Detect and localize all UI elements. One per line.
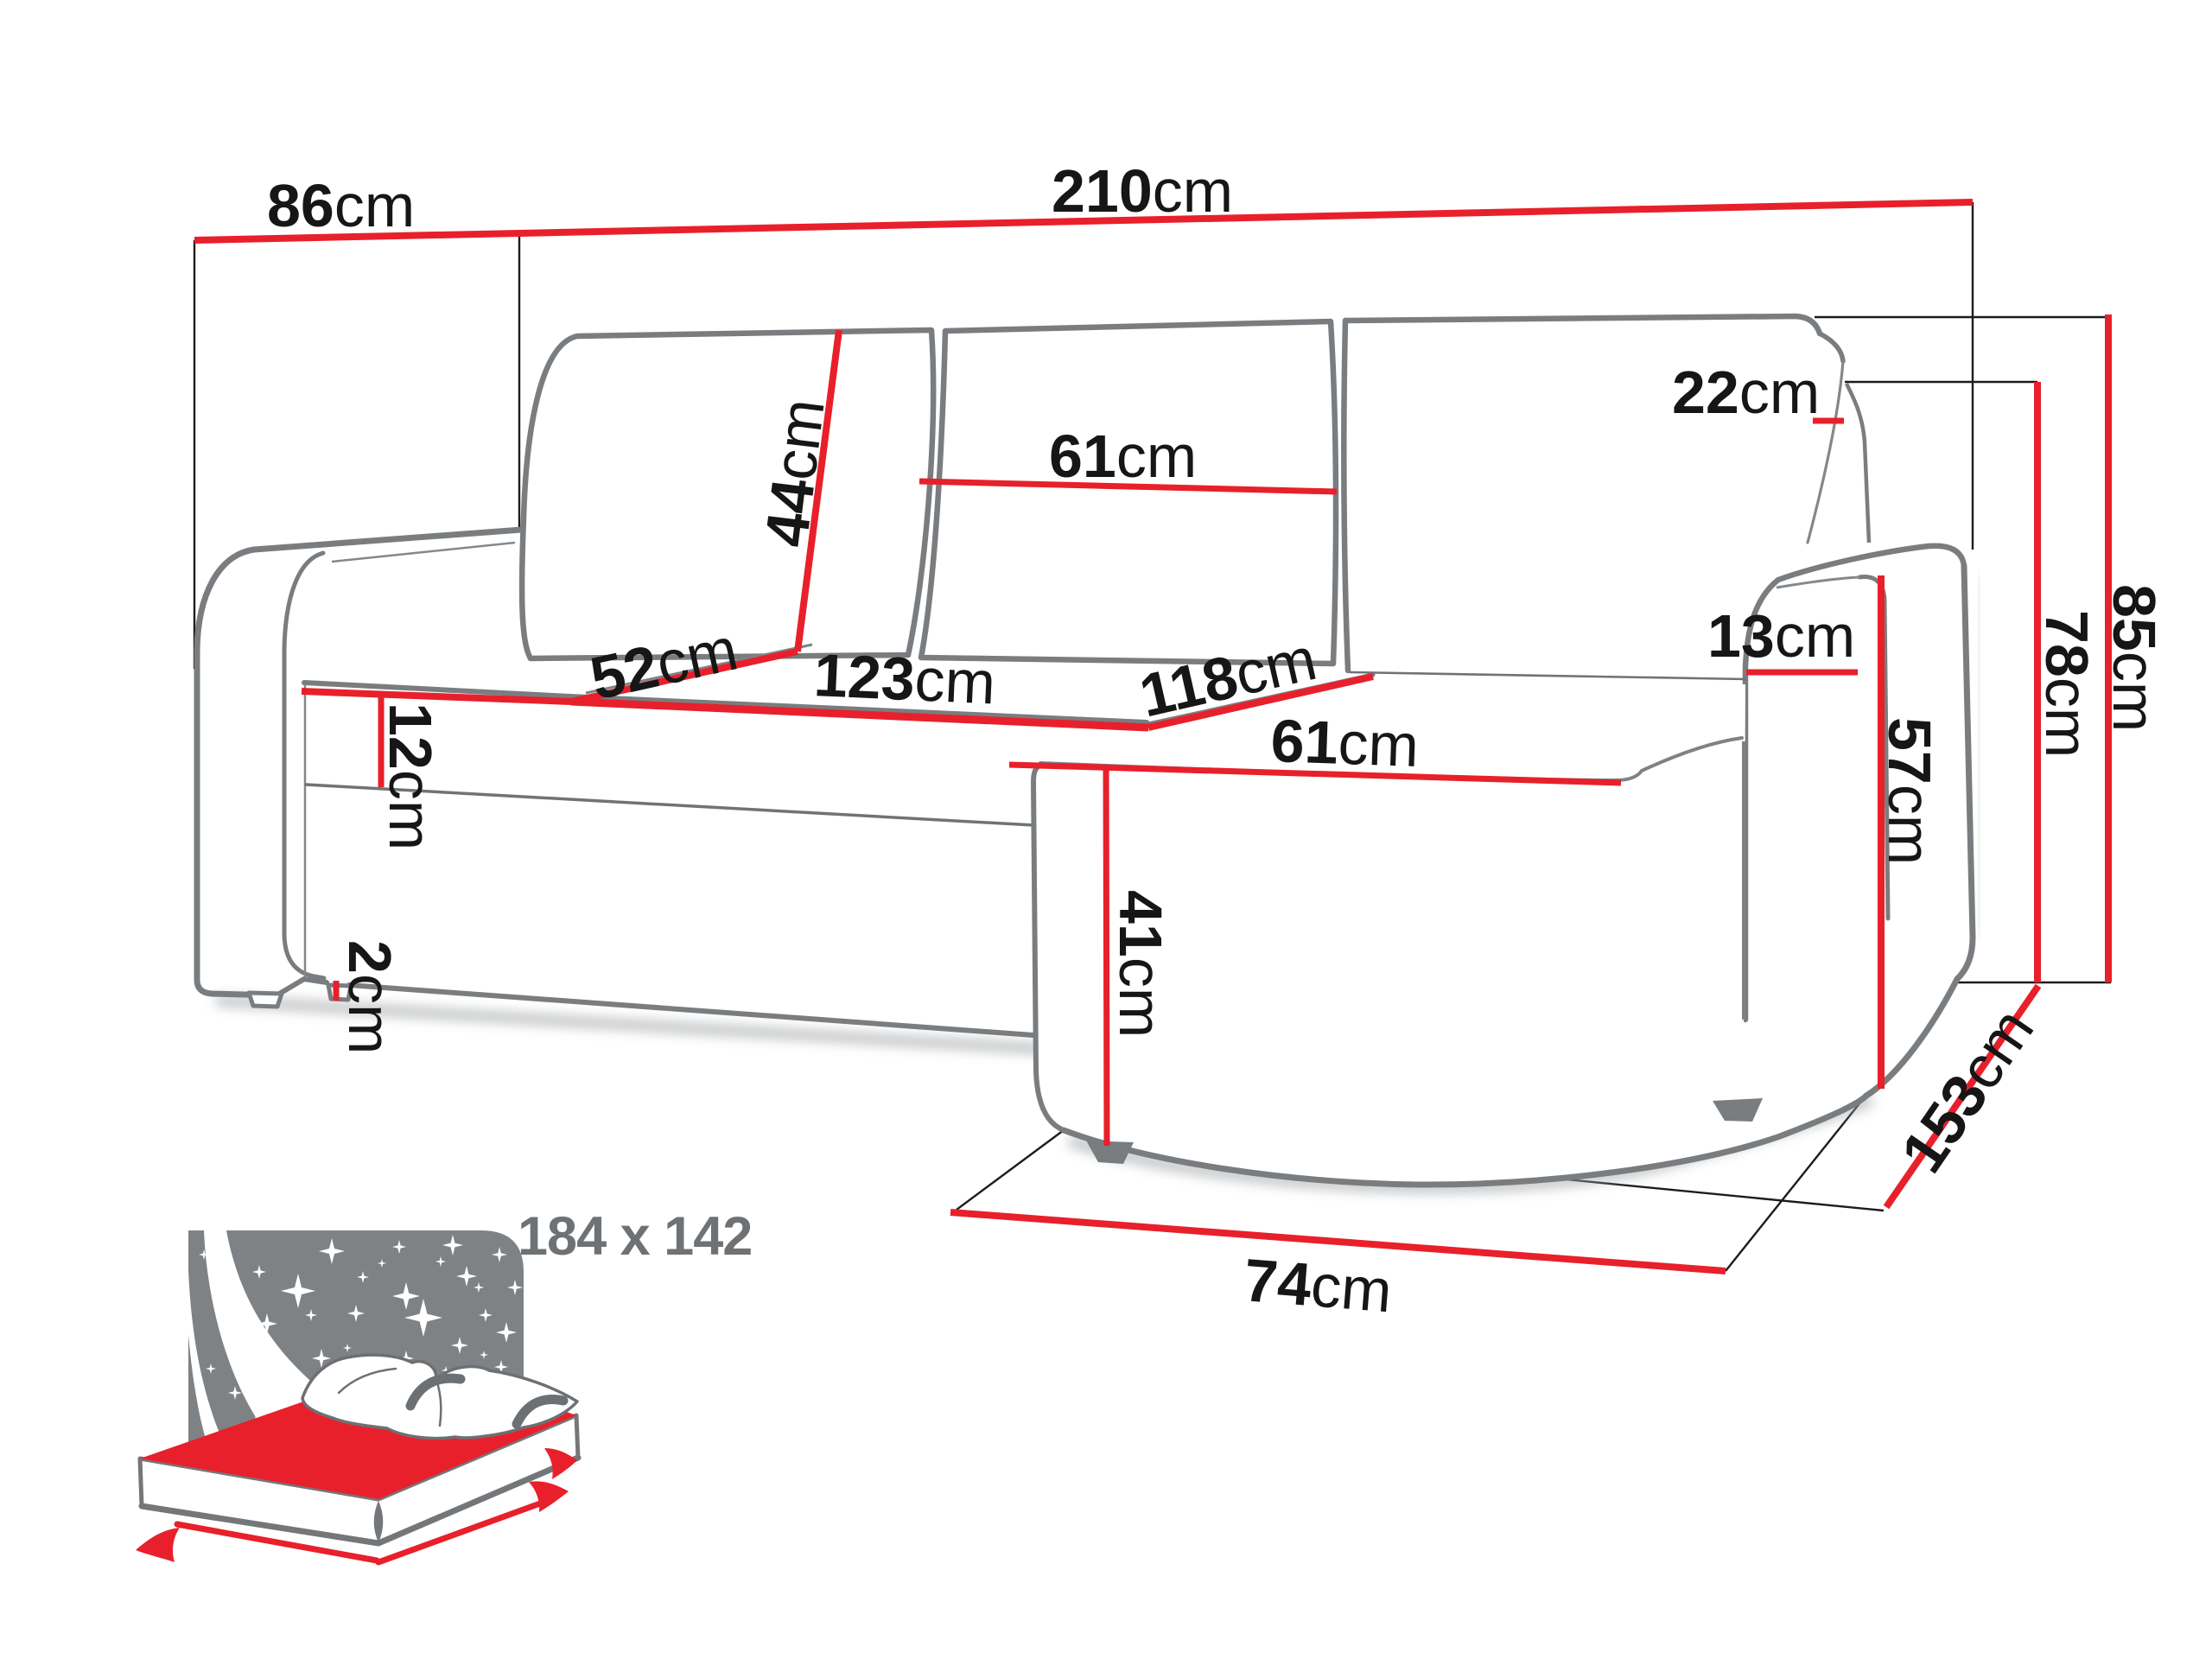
- svg-text:13cm: 13cm: [1707, 602, 1855, 670]
- svg-text:57cm: 57cm: [1876, 717, 1943, 865]
- svg-text:41cm: 41cm: [1107, 890, 1174, 1038]
- svg-text:61cm: 61cm: [1049, 423, 1197, 490]
- svg-text:22cm: 22cm: [1672, 359, 1820, 426]
- svg-text:78cm: 78cm: [2033, 610, 2101, 758]
- svg-text:86cm: 86cm: [267, 172, 415, 239]
- svg-text:12cm: 12cm: [377, 702, 444, 850]
- svg-text:61cm: 61cm: [1269, 707, 1420, 779]
- svg-text:74cm: 74cm: [1242, 1246, 1395, 1325]
- svg-text:123cm: 123cm: [812, 641, 996, 716]
- svg-text:184 x 142: 184 x 142: [518, 1206, 752, 1267]
- svg-text:2cm: 2cm: [336, 940, 404, 1054]
- svg-text:85cm: 85cm: [2101, 584, 2168, 732]
- svg-text:210cm: 210cm: [1052, 157, 1233, 225]
